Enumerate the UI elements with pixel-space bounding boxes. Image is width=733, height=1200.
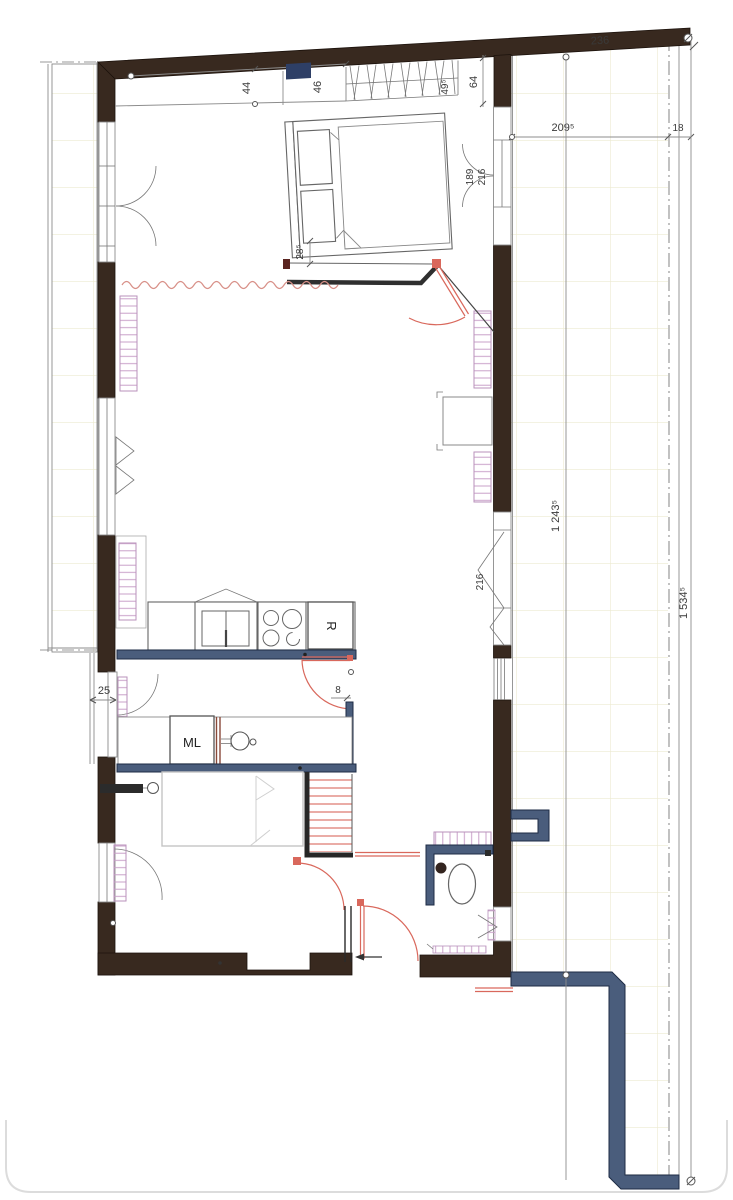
dim-closet-mid: 46 bbox=[312, 81, 324, 93]
dim-terrace-edge: 18 bbox=[672, 123, 684, 134]
radiator bbox=[474, 452, 491, 502]
wall-stub bbox=[100, 784, 143, 793]
single-bed bbox=[162, 772, 303, 846]
fridge: R bbox=[308, 602, 353, 649]
radiator-bath bbox=[433, 946, 486, 953]
left-wall-pier bbox=[98, 757, 115, 843]
wardrobe-rail bbox=[307, 772, 353, 855]
bed-platform-wall bbox=[287, 266, 437, 283]
radiator-wc bbox=[434, 832, 491, 845]
right-wall bbox=[494, 245, 512, 512]
dim-bedroom-door-a: 189 bbox=[465, 168, 476, 185]
radiator bbox=[120, 296, 137, 391]
washing-machine-label: ML bbox=[183, 735, 201, 750]
floor-plan: R ML bbox=[0, 0, 733, 1200]
left-wall-pier bbox=[98, 535, 115, 672]
right-wall-pier bbox=[494, 645, 512, 658]
bedroom2-door bbox=[293, 853, 420, 911]
kitchen: R bbox=[117, 589, 356, 659]
laundry-edge-wall bbox=[117, 764, 356, 772]
dim-top-wall: 236 bbox=[590, 34, 609, 47]
entrance-arrow bbox=[355, 954, 382, 961]
toilet bbox=[436, 863, 476, 905]
dim-closet-width: 49⁵ bbox=[440, 79, 451, 94]
left-wall-pier bbox=[98, 262, 115, 398]
bathroom-window-band bbox=[494, 907, 512, 941]
radiator bbox=[474, 311, 491, 388]
radiator bbox=[114, 845, 126, 901]
dim-right-window: 216 bbox=[475, 573, 486, 590]
cooktop bbox=[258, 602, 306, 650]
partition-line bbox=[287, 263, 433, 264]
dim-kitchen-partition: 8 bbox=[335, 685, 341, 696]
floor-plan-screenshot: R ML bbox=[0, 0, 733, 1200]
casement-triangle bbox=[116, 466, 134, 494]
bottom-wall bbox=[98, 953, 352, 975]
dim-closet-left: 44 bbox=[241, 82, 253, 94]
bedroom-2 bbox=[100, 772, 353, 855]
fridge-label: R bbox=[324, 621, 339, 630]
kitchen-counter-edge-wall bbox=[117, 650, 356, 659]
closet-front-line bbox=[115, 101, 346, 106]
bedroom-main bbox=[115, 55, 494, 332]
navy-wall-marker bbox=[286, 63, 311, 80]
double-bed bbox=[285, 113, 452, 258]
door-post bbox=[283, 259, 290, 269]
dim-terrace-outer-length: 1 534⁵ bbox=[678, 587, 690, 619]
french-door-swing bbox=[116, 166, 156, 206]
right-wall bbox=[494, 700, 512, 907]
dim-left-wall-offset: 25 bbox=[98, 685, 110, 697]
angled-partition bbox=[437, 264, 494, 332]
dim-bedroom-door-b: 216 bbox=[477, 168, 488, 185]
french-door-swing bbox=[116, 206, 156, 246]
dim-terrace-inner-length: 1 243⁵ bbox=[550, 500, 562, 532]
partition-dim: 8 bbox=[331, 685, 351, 701]
radiator bbox=[119, 543, 136, 620]
casement-triangle bbox=[116, 437, 134, 465]
dim-closet-depth: 64 bbox=[468, 76, 480, 88]
right-window-band bbox=[494, 512, 512, 645]
wc bbox=[426, 845, 493, 949]
kitchen-sink bbox=[195, 589, 257, 650]
right-wall-stub bbox=[494, 55, 511, 108]
terrace-right bbox=[511, 33, 679, 1188]
washing-machine: ML bbox=[170, 716, 214, 764]
dim-bed-offset: 28⁵ bbox=[295, 244, 306, 259]
dim-terrace-width: 209⁵ bbox=[552, 122, 575, 134]
cabinet bbox=[437, 392, 492, 450]
door-stop bbox=[148, 783, 159, 794]
pipe-chase bbox=[494, 658, 505, 700]
laundry: ML bbox=[117, 716, 356, 772]
kitchen-door bbox=[302, 655, 353, 709]
